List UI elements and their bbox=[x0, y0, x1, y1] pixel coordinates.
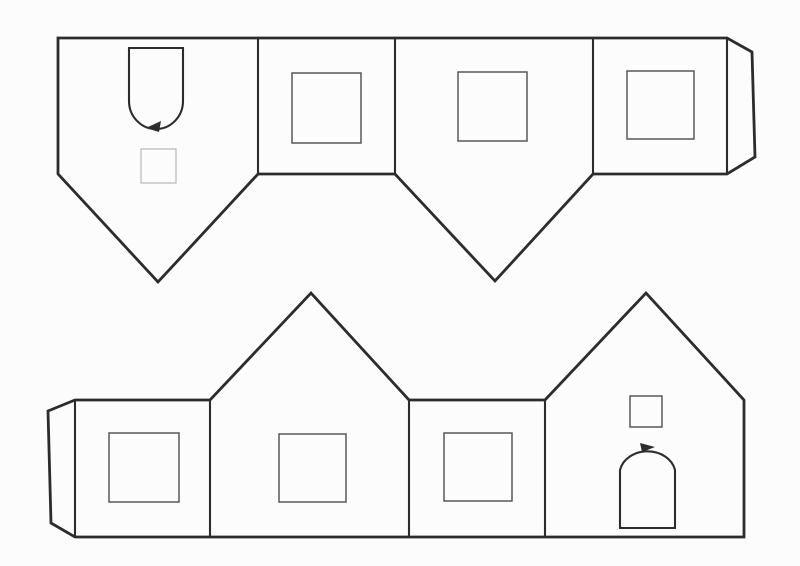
bottom-strip-outline bbox=[48, 293, 744, 537]
scanned-template-page bbox=[0, 0, 800, 566]
house-papercraft-template-drawing bbox=[0, 0, 800, 566]
top-strip-outline bbox=[58, 38, 755, 282]
